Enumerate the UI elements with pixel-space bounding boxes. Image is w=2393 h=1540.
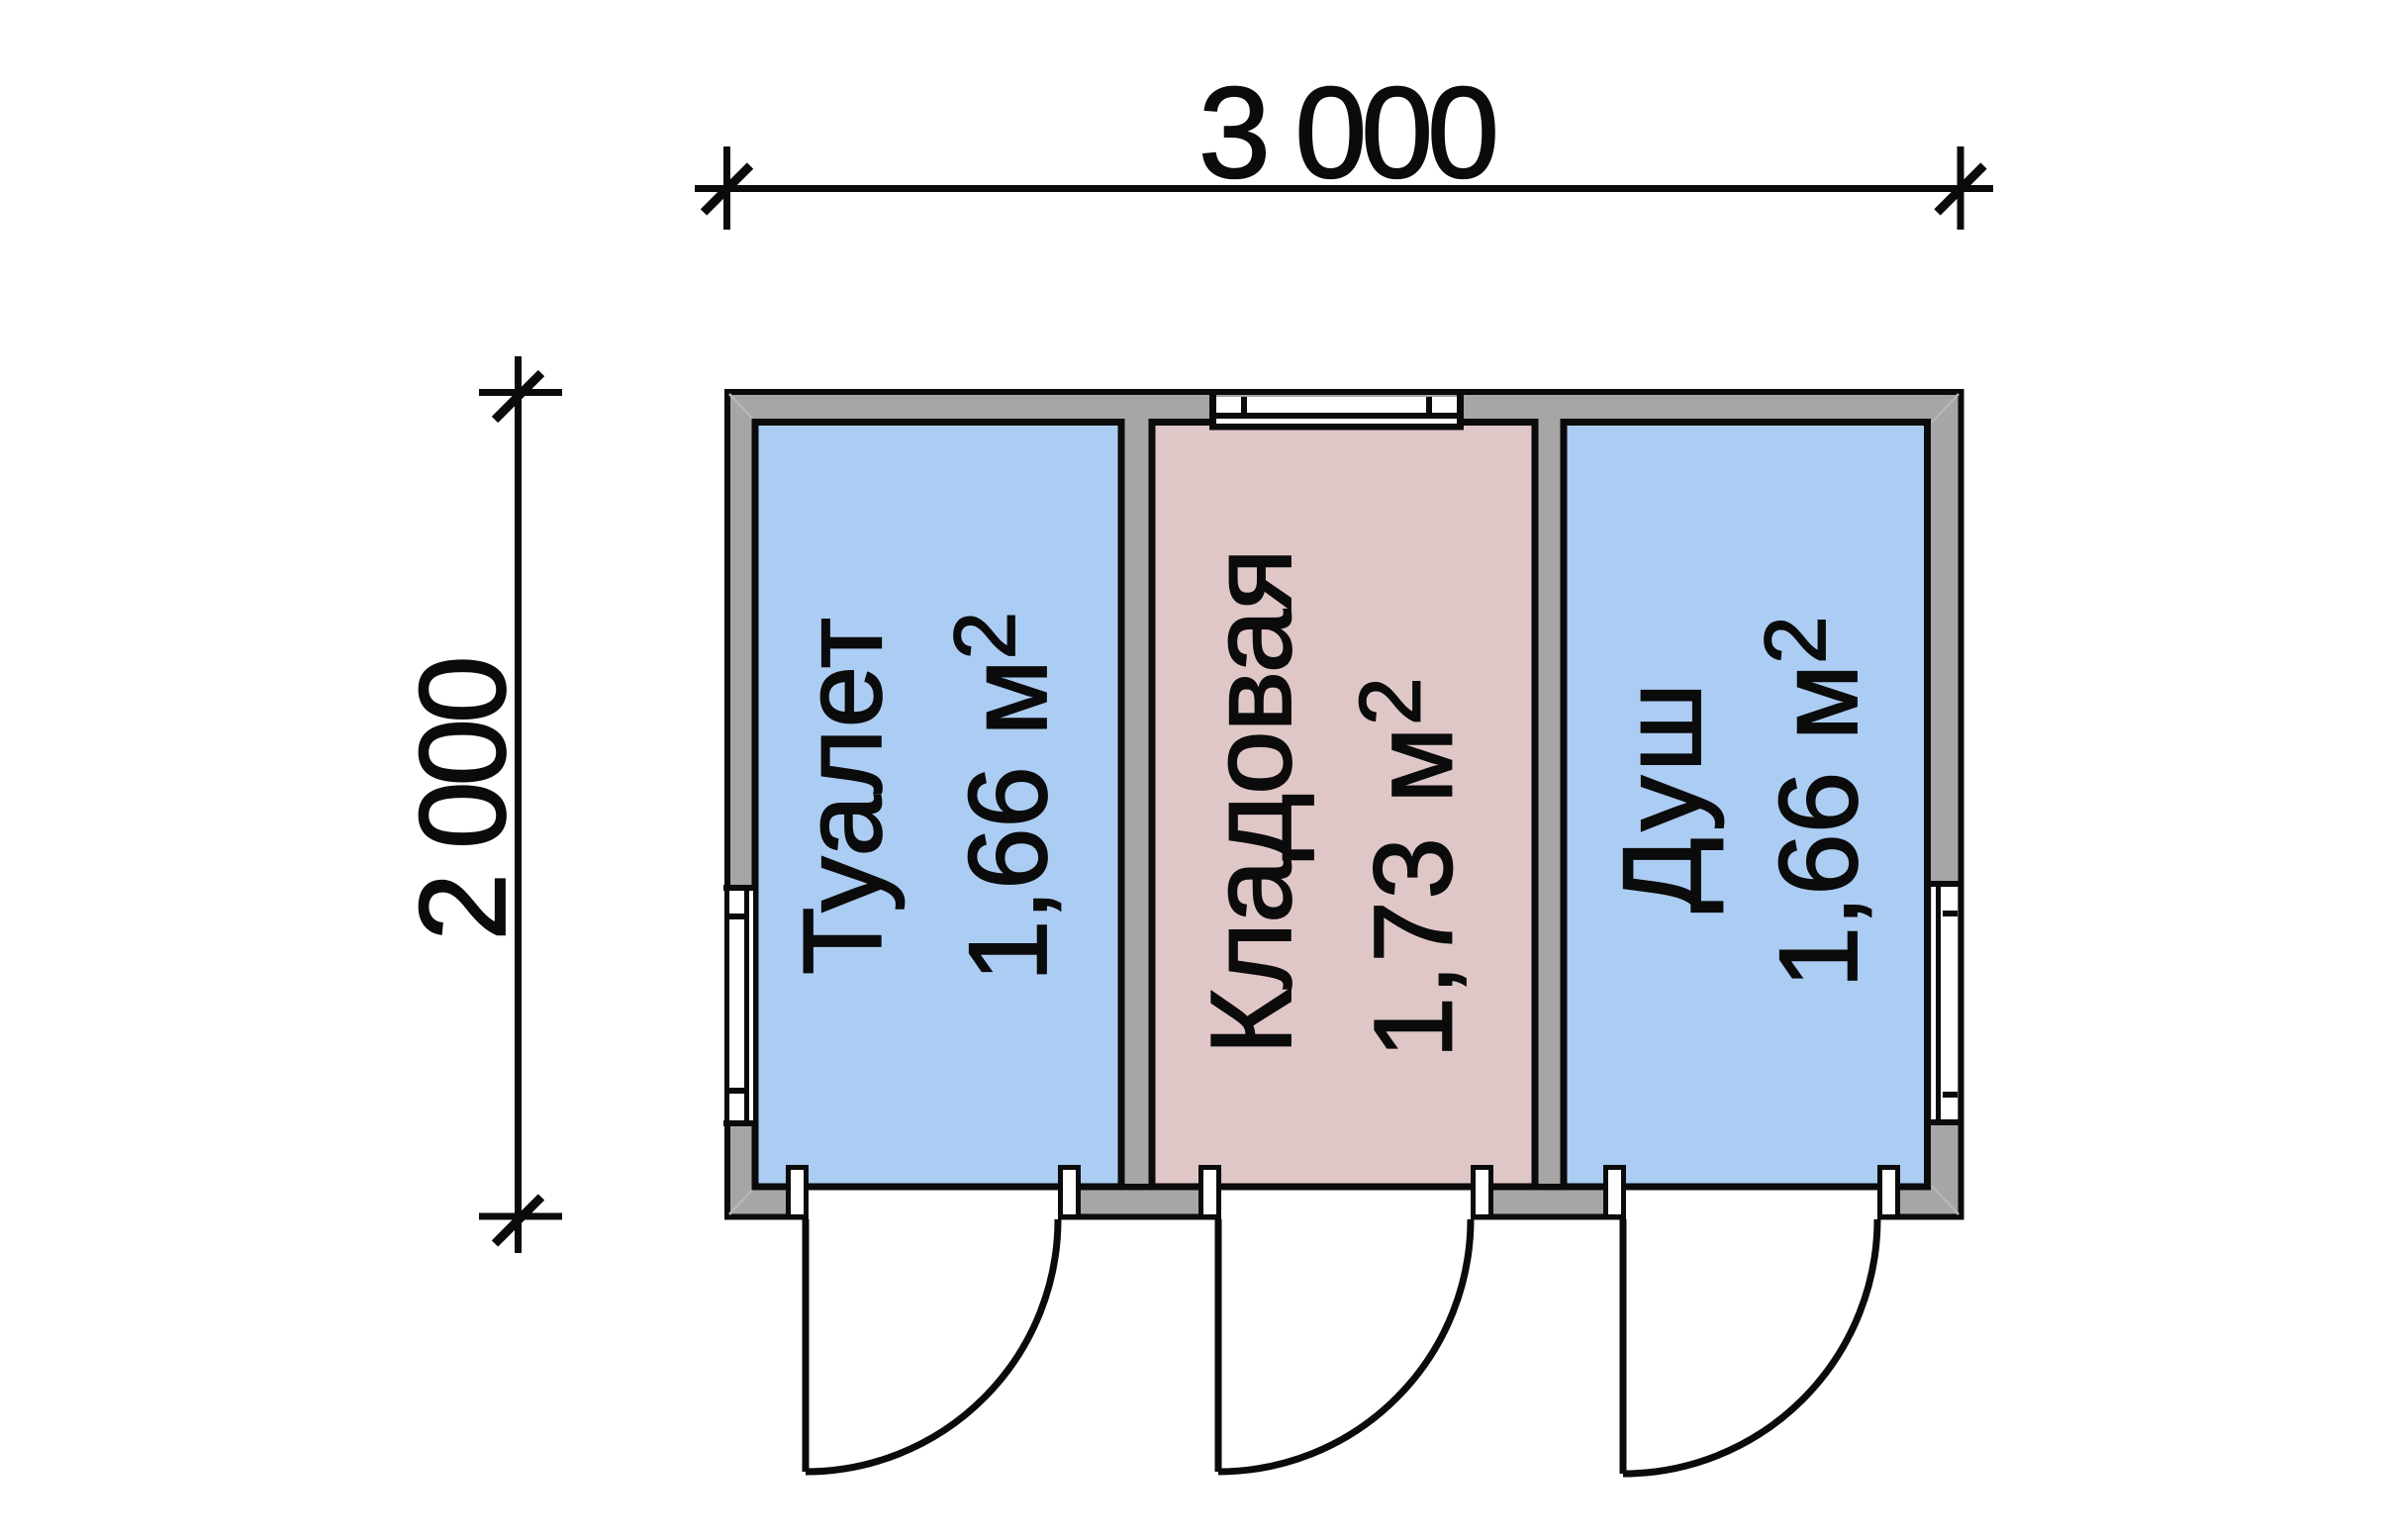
svg-text:1,66 м2: 1,66 м2 — [937, 612, 1070, 982]
svg-text:Кладовая: Кладовая — [1187, 548, 1315, 1055]
svg-text:Туалет: Туалет — [781, 618, 905, 975]
svg-text:3 000: 3 000 — [1198, 59, 1499, 205]
svg-text:Душ: Душ — [1600, 683, 1724, 913]
svg-text:1,73 м2: 1,73 м2 — [1343, 678, 1476, 1059]
svg-text:2 000: 2 000 — [396, 656, 531, 941]
svg-text:1,66 м2: 1,66 м2 — [1748, 617, 1880, 989]
